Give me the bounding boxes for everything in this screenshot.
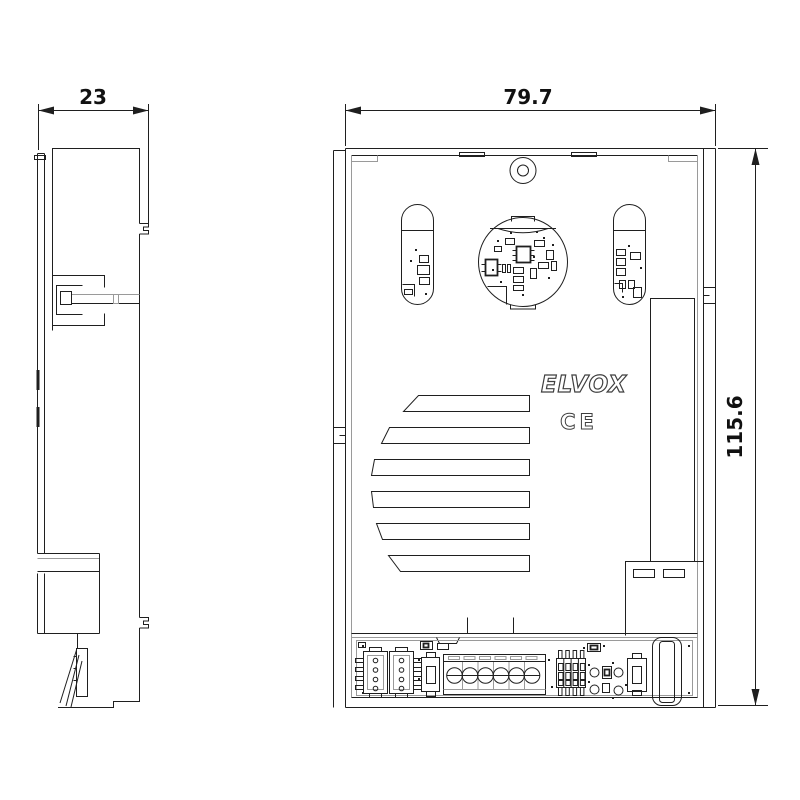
cable-channel <box>651 299 695 562</box>
wires <box>60 650 82 707</box>
junction-box <box>626 562 704 636</box>
mounting-bracket-lower <box>38 554 100 634</box>
top-clip <box>35 156 46 160</box>
ic-chip <box>517 247 531 263</box>
front-view: ELVOX CE <box>334 149 716 708</box>
dim-label-side-width: 23 <box>79 85 107 109</box>
mounting-slot-right <box>614 205 646 305</box>
terminal-side-profile <box>58 634 114 708</box>
connector-left-2 <box>390 648 422 698</box>
side-view <box>35 149 149 708</box>
elvox-logo: ELVOX <box>541 372 627 398</box>
terminal-divider <box>352 618 698 644</box>
din-clip-left <box>334 428 346 444</box>
terminal-strip <box>346 638 716 708</box>
dim-side-width: 23 <box>39 85 149 223</box>
screw-terminal-block <box>444 655 546 695</box>
speaker-grille <box>372 396 530 572</box>
din-clip-tab-lower <box>140 618 149 629</box>
connector-left-1 <box>356 648 388 698</box>
dip-switch <box>557 651 586 696</box>
dim-label-front-width: 79.7 <box>503 85 552 109</box>
din-clip-tab-upper <box>140 224 149 235</box>
technical-drawing-canvas: 23 79.7 115.6 <box>0 0 800 800</box>
push-switch-1 <box>422 653 440 697</box>
push-switch-2 <box>628 654 647 696</box>
ce-mark: CE <box>560 410 598 434</box>
mounting-bracket-mid <box>53 276 140 326</box>
top-screw <box>510 158 536 184</box>
dim-front-width: 79.7 <box>346 85 716 146</box>
mounting-slot-left <box>402 205 434 305</box>
dim-label-front-height: 115.6 <box>723 395 747 458</box>
led-trimmer-cluster <box>583 645 627 699</box>
din-clip-right <box>704 288 716 304</box>
transistor <box>486 260 498 276</box>
speaker-pcb-circle <box>479 217 568 310</box>
dim-front-height: 115.6 <box>718 149 768 706</box>
elvox-intercom-dimension-drawing: 23 79.7 115.6 <box>0 0 800 800</box>
